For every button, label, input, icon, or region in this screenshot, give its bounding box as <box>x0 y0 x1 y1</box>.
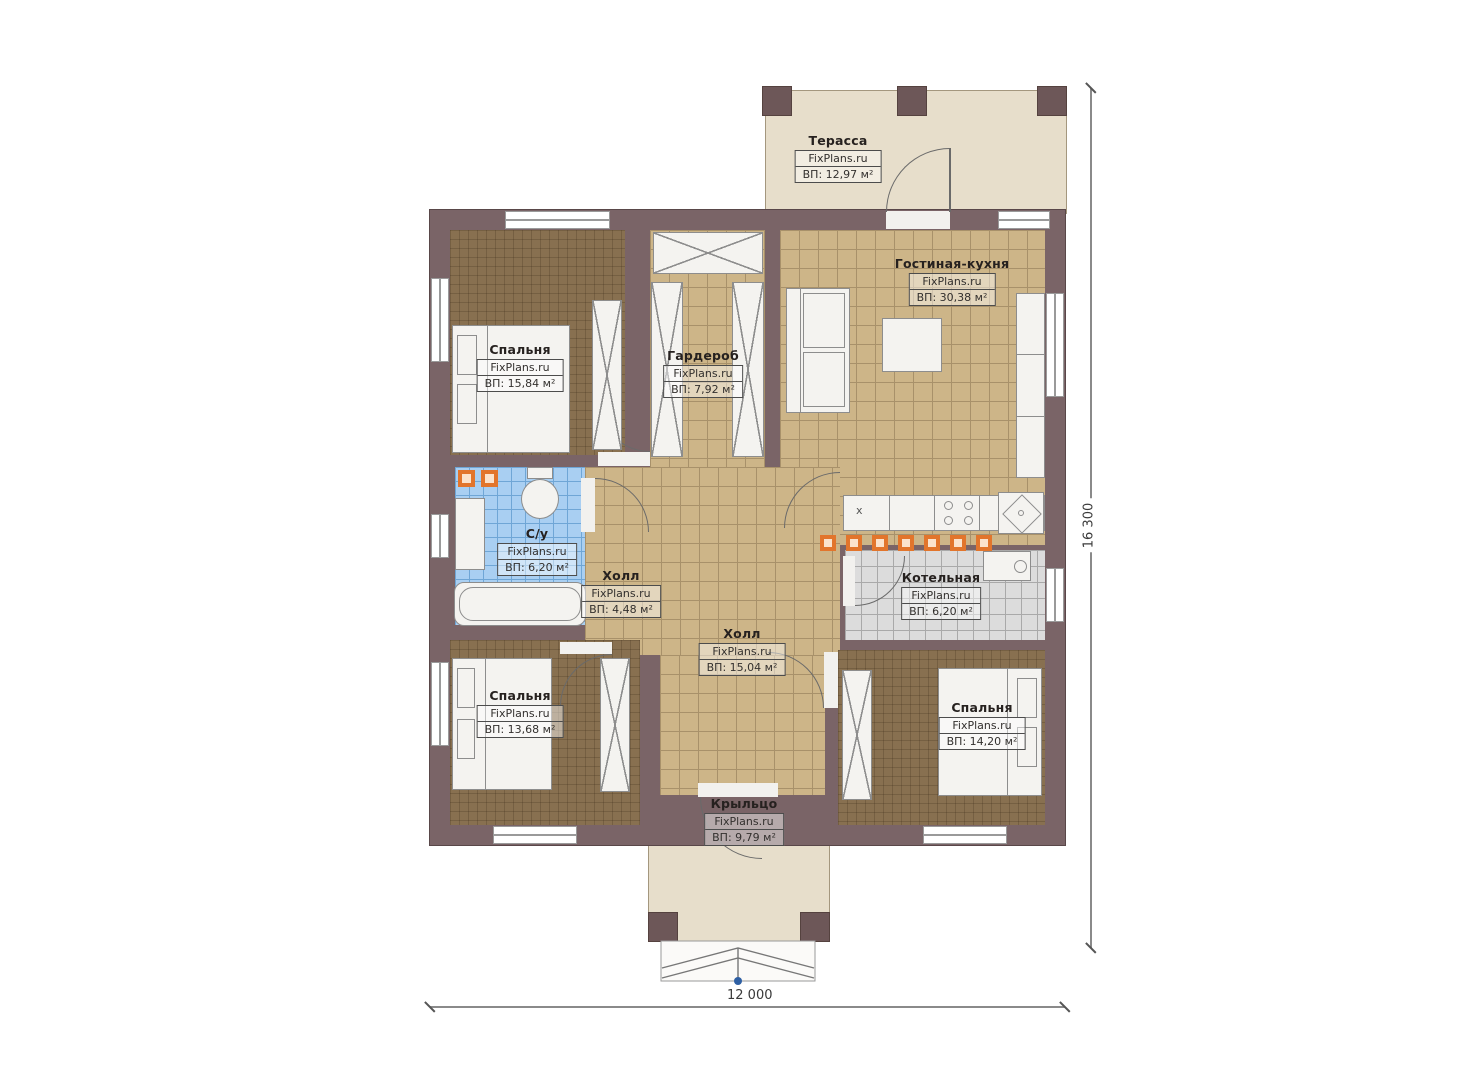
bedroom-1-door-opening <box>598 452 650 466</box>
stove-burner <box>964 516 973 525</box>
room-area: ВП: 14,20 м² <box>940 734 1025 749</box>
porch-pillar <box>648 912 678 942</box>
heater-accent <box>898 535 914 551</box>
heater-accent <box>872 535 888 551</box>
room-info-box: FixPlans.ru ВП: 7,92 м² <box>663 365 743 398</box>
room-label-hall-main: Холл FixPlans.ru ВП: 15,04 м² <box>699 626 786 676</box>
stove-burner <box>944 516 953 525</box>
room-info-box: FixPlans.ru ВП: 9,79 м² <box>704 813 784 846</box>
heater-accent <box>481 470 498 487</box>
room-name: Терасса <box>795 133 882 148</box>
window <box>431 514 449 558</box>
kitchen-sink-icon <box>998 492 1044 534</box>
pillow-icon <box>457 719 475 759</box>
terrace-door-leaf <box>949 148 951 212</box>
closet-unit <box>842 670 872 800</box>
room-name: Спальня <box>477 688 564 703</box>
sofa-cushion <box>803 352 845 407</box>
room-info-box: FixPlans.ru ВП: 13,68 м² <box>477 705 564 738</box>
boiler-dial <box>1014 560 1027 573</box>
room-info-box: FixPlans.ru ВП: 15,84 м² <box>477 359 564 392</box>
counter-divider <box>979 496 980 530</box>
stove-burner <box>964 501 973 510</box>
counter-divider <box>934 496 935 530</box>
room-info-box: FixPlans.ru ВП: 12,97 м² <box>795 150 882 183</box>
room-label-living-kitchen: Гостиная-кухня FixPlans.ru ВП: 30,38 м² <box>895 256 1009 306</box>
room-area: ВП: 6,20 м² <box>902 604 980 619</box>
room-label-bedroom-1: Спальня FixPlans.ru ВП: 15,84 м² <box>477 342 564 392</box>
pillow-icon <box>457 335 477 375</box>
room-label-porch: Крыльцо FixPlans.ru ВП: 9,79 м² <box>704 796 784 846</box>
room-area: ВП: 4,48 м² <box>582 602 660 617</box>
wardrobe-unit <box>653 232 763 274</box>
bedroom-2-door-opening <box>560 642 612 654</box>
room-name: Спальня <box>477 342 564 357</box>
dimension-line-bottom <box>430 1006 1065 1008</box>
watermark: FixPlans.ru <box>940 718 1025 734</box>
bedroom-3-door-opening <box>824 652 838 708</box>
room-name: С/у <box>497 526 577 541</box>
room-area: ВП: 6,20 м² <box>498 560 576 575</box>
counter-divider <box>889 496 890 530</box>
porch-steps-icon <box>660 940 816 988</box>
room-area: ВП: 12,97 м² <box>796 167 881 182</box>
sink-drain <box>1018 510 1024 516</box>
room-label-terrace: Терасса FixPlans.ru ВП: 12,97 м² <box>795 133 882 183</box>
terrace-pillar <box>1037 86 1067 116</box>
room-name: Гардероб <box>663 348 743 363</box>
room-area: ВП: 15,84 м² <box>478 376 563 391</box>
room-label-wardrobe: Гардероб FixPlans.ru ВП: 7,92 м² <box>663 348 743 398</box>
dimension-height-label: 16 300 <box>1081 499 1096 553</box>
closet-unit <box>600 658 630 792</box>
watermark: FixPlans.ru <box>478 706 563 722</box>
kitchen-cell-mark: x <box>856 504 863 517</box>
room-area: ВП: 13,68 м² <box>478 722 563 737</box>
watermark: FixPlans.ru <box>796 151 881 167</box>
porch-pillar <box>800 912 830 942</box>
stove-burner <box>944 501 953 510</box>
room-label-hall-small: Холл FixPlans.ru ВП: 4,48 м² <box>581 568 661 618</box>
room-info-box: FixPlans.ru ВП: 4,48 м² <box>581 585 661 618</box>
room-info-box: FixPlans.ru ВП: 14,20 м² <box>939 717 1026 750</box>
room-area: ВП: 9,79 м² <box>705 830 783 845</box>
table-icon <box>882 318 942 372</box>
room-info-box: FixPlans.ru ВП: 6,20 м² <box>497 543 577 576</box>
heater-accent <box>950 535 966 551</box>
room-area: ВП: 30,38 м² <box>910 290 995 305</box>
bathroom-door-opening <box>581 478 595 532</box>
room-label-bathroom: С/у FixPlans.ru ВП: 6,20 м² <box>497 526 577 576</box>
window <box>998 211 1050 229</box>
window <box>431 662 449 746</box>
watermark: FixPlans.ru <box>910 274 995 290</box>
boiler-door-opening <box>843 556 855 606</box>
heater-accent <box>820 535 836 551</box>
room-name: Холл <box>581 568 661 583</box>
sofa-icon <box>786 288 850 413</box>
room-label-boiler: Котельная FixPlans.ru ВП: 6,20 м² <box>901 570 981 620</box>
room-info-box: FixPlans.ru ВП: 6,20 м² <box>901 587 981 620</box>
pillow-icon <box>457 384 477 424</box>
room-info-box: FixPlans.ru ВП: 30,38 м² <box>909 273 996 306</box>
window <box>1046 293 1064 397</box>
room-name: Гостиная-кухня <box>895 256 1009 271</box>
watermark: FixPlans.ru <box>705 814 783 830</box>
room-label-bedroom-3: Спальня FixPlans.ru ВП: 14,20 м² <box>939 700 1026 750</box>
watermark: FixPlans.ru <box>582 586 660 602</box>
heater-accent <box>846 535 862 551</box>
watermark: FixPlans.ru <box>664 366 742 382</box>
washing-machine-icon <box>455 498 485 570</box>
bathtub-icon <box>454 582 586 626</box>
sofa-back-line <box>800 289 801 412</box>
terrace-door-opening <box>886 211 950 229</box>
terrace-pillar <box>762 86 792 116</box>
window <box>923 826 1007 844</box>
toilet-icon <box>521 479 559 519</box>
room-name: Спальня <box>939 700 1026 715</box>
floor-plan-canvas: x Терасса FixPlans.ru ВП: 12,97 м² <box>0 0 1474 1080</box>
dimension-width-label: 12 000 <box>723 988 777 1003</box>
heater-accent <box>924 535 940 551</box>
watermark: FixPlans.ru <box>498 544 576 560</box>
watermark: FixPlans.ru <box>478 360 563 376</box>
room-name: Холл <box>699 626 786 641</box>
room-name: Крыльцо <box>704 796 784 811</box>
cabinet-divider <box>1017 354 1044 355</box>
entry-door-opening <box>698 783 778 797</box>
watermark: FixPlans.ru <box>902 588 980 604</box>
room-name: Котельная <box>901 570 981 585</box>
pillow-icon <box>457 668 475 708</box>
kitchen-tall-cabinet <box>1016 293 1045 478</box>
boiler-unit <box>983 551 1031 581</box>
window <box>431 278 449 362</box>
room-area: ВП: 7,92 м² <box>664 382 742 397</box>
closet-unit <box>592 300 622 450</box>
watermark: FixPlans.ru <box>700 644 785 660</box>
room-area: ВП: 15,04 м² <box>700 660 785 675</box>
terrace-pillar <box>897 86 927 116</box>
window <box>1046 568 1064 622</box>
cabinet-divider <box>1017 416 1044 417</box>
toilet-tank <box>527 467 553 479</box>
window <box>493 826 577 844</box>
room-label-bedroom-2: Спальня FixPlans.ru ВП: 13,68 м² <box>477 688 564 738</box>
heater-accent <box>976 535 992 551</box>
window <box>505 211 610 229</box>
heater-accent <box>458 470 475 487</box>
room-info-box: FixPlans.ru ВП: 15,04 м² <box>699 643 786 676</box>
sofa-cushion <box>803 293 845 348</box>
